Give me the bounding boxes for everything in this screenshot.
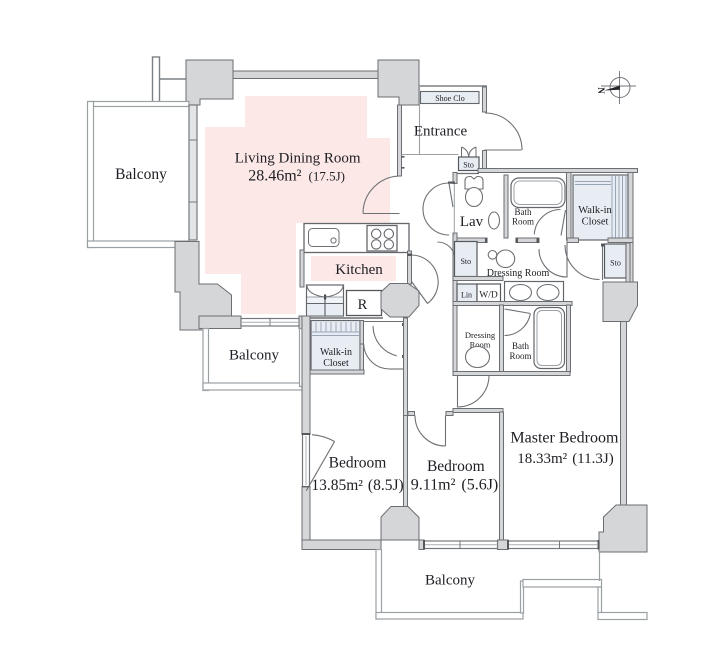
svg-text:13.85m²(8.5J): 13.85m²(8.5J) — [311, 477, 403, 494]
svg-text:Shoe Clo: Shoe Clo — [435, 94, 465, 103]
svg-text:Sto: Sto — [460, 257, 471, 266]
svg-text:Bath: Bath — [515, 207, 532, 217]
svg-text:Balcony: Balcony — [229, 348, 279, 364]
svg-text:18.33m²(11.3J): 18.33m²(11.3J) — [517, 451, 613, 467]
svg-text:Entrance: Entrance — [414, 124, 468, 140]
svg-text:Living Dining Room: Living Dining Room — [235, 151, 361, 167]
svg-text:Lav: Lav — [460, 214, 484, 230]
svg-text:Walk-in: Walk-in — [578, 205, 612, 216]
svg-text:Bedroom: Bedroom — [427, 458, 485, 475]
svg-text:Sto: Sto — [610, 259, 621, 268]
svg-text:R: R — [358, 297, 368, 313]
svg-text:Balcony: Balcony — [425, 573, 475, 589]
svg-text:Kitchen: Kitchen — [335, 262, 383, 278]
svg-text:Sto: Sto — [463, 161, 474, 170]
svg-text:Closet: Closet — [323, 358, 349, 369]
svg-text:Room: Room — [509, 351, 531, 361]
svg-text:Lin: Lin — [461, 290, 472, 299]
svg-text:Walk-in: Walk-in — [320, 347, 352, 358]
svg-text:W/D: W/D — [479, 291, 498, 301]
svg-text:Closet: Closet — [582, 217, 609, 228]
svg-text:9.11m²(5.6J): 9.11m²(5.6J) — [411, 477, 499, 494]
svg-text:Bedroom: Bedroom — [329, 455, 387, 472]
svg-text:Dressing: Dressing — [465, 330, 496, 340]
svg-text:N: N — [596, 87, 606, 94]
svg-text:Master Bedroom: Master Bedroom — [510, 430, 619, 447]
svg-text:28.46m²(17.5J): 28.46m²(17.5J) — [248, 168, 345, 185]
svg-text:Balcony: Balcony — [115, 166, 167, 183]
svg-text:Bath: Bath — [512, 341, 529, 351]
svg-text:Room: Room — [512, 217, 534, 227]
